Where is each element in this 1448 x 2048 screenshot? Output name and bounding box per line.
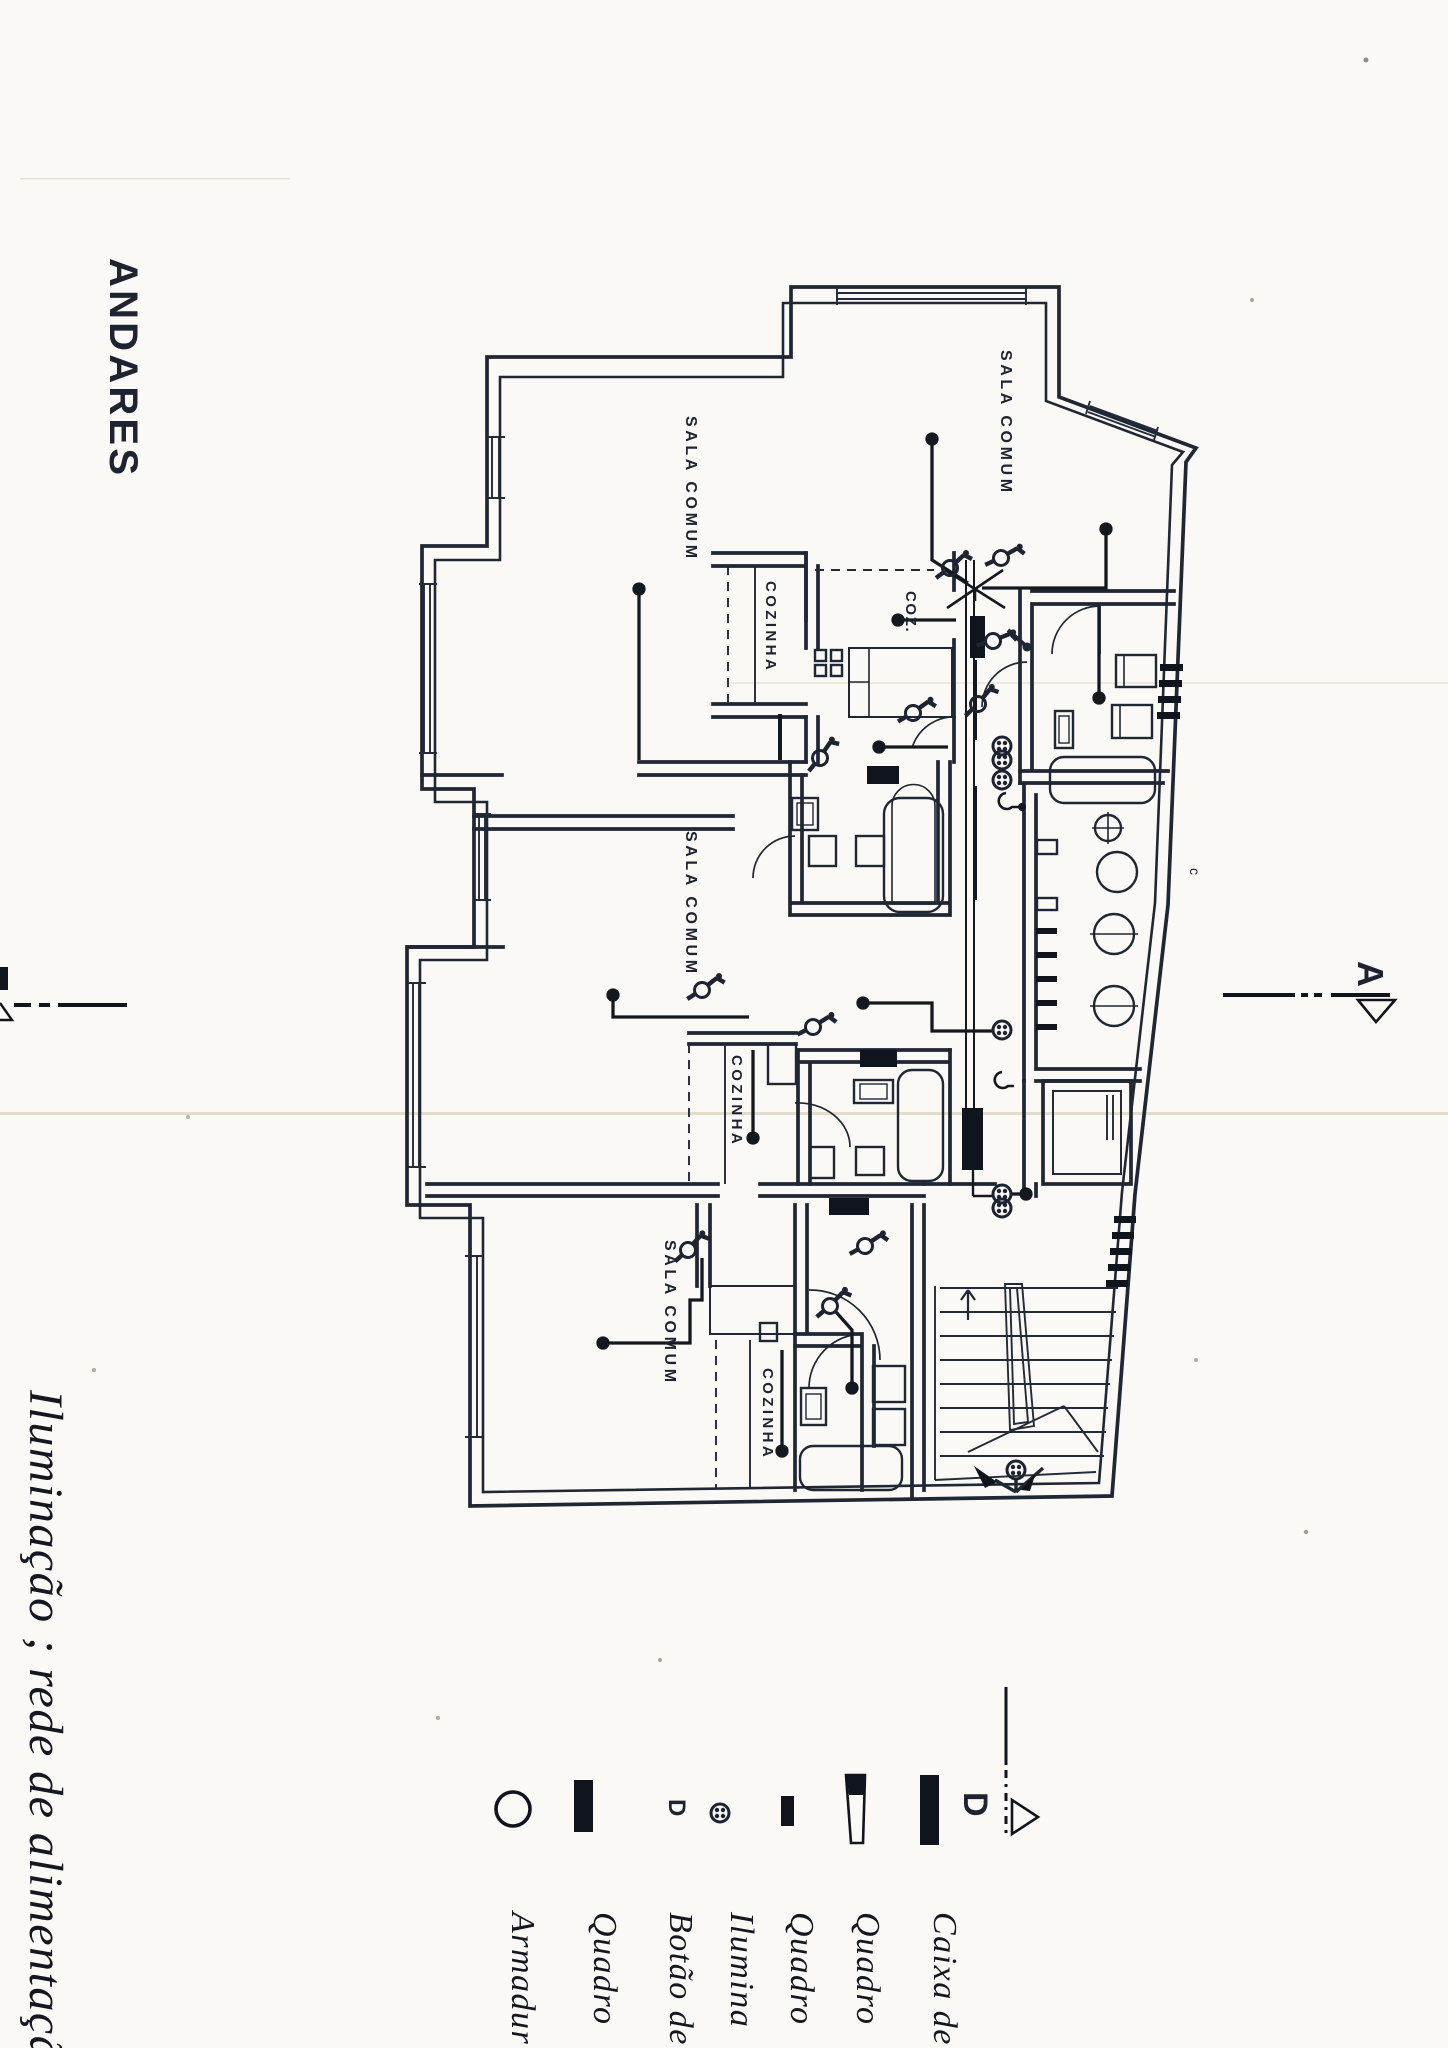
svg-text:Caixa de: Caixa de <box>926 1912 963 2046</box>
svg-text:Quadro: Quadro <box>586 1912 623 2026</box>
svg-text:COZINHA: COZINHA <box>759 1368 776 1460</box>
svg-text:Armadur: Armadur <box>504 1910 541 2045</box>
svg-text:c: c <box>1187 868 1203 875</box>
svg-text:ANDARES: ANDARES <box>101 258 145 478</box>
svg-text:COZINHA: COZINHA <box>728 1055 745 1147</box>
svg-text:Quadro: Quadro <box>849 1912 886 2026</box>
svg-text:Botão de: Botão de <box>662 1912 699 2046</box>
svg-text:SALA COMUM: SALA COMUM <box>661 1240 678 1386</box>
svg-text:SALA COMUM: SALA COMUM <box>682 831 699 977</box>
svg-text:SALA COMUM: SALA COMUM <box>997 350 1014 496</box>
svg-text:Ilumina: Ilumina <box>723 1911 760 2028</box>
svg-text:D: D <box>956 1792 994 1817</box>
svg-text:Iluminação ; rede de alimentaç: Iluminação ; rede de alimentação <box>19 1389 72 2048</box>
svg-text:A: A <box>1350 961 1391 987</box>
svg-text:COZ.: COZ. <box>902 591 919 633</box>
svg-text:COZINHA: COZINHA <box>762 581 779 673</box>
svg-text:D: D <box>663 1799 690 1816</box>
svg-text:Quadro: Quadro <box>783 1912 820 2026</box>
svg-text:SALA COMUM: SALA COMUM <box>682 416 699 562</box>
